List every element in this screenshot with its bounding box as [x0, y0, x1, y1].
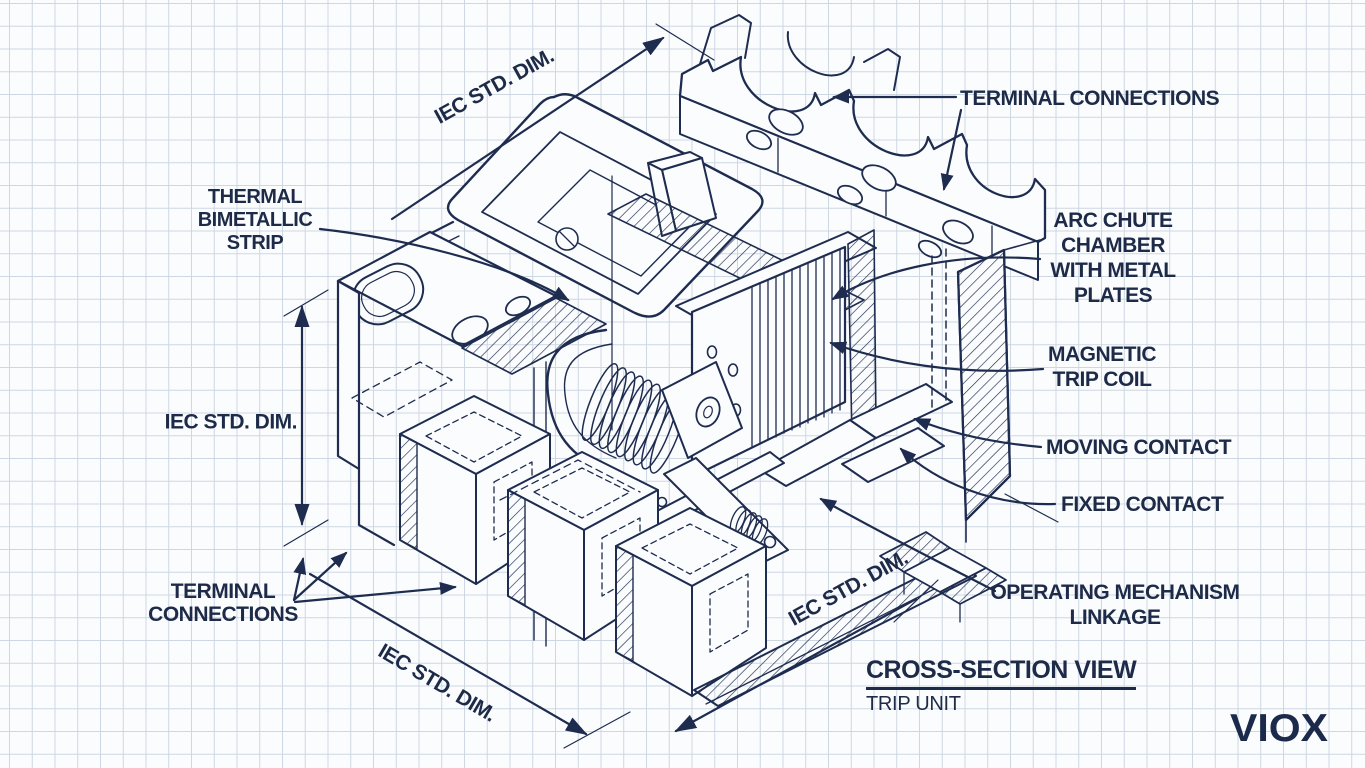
label-terminal-connections-top: TERMINAL CONNECTIONS	[960, 87, 1219, 110]
label-operating-mechanism-linkage: OPERATING MECHANISM LINKAGE	[985, 580, 1245, 630]
label-thermal-bimetallic-strip: THERMAL BIMETALLIC STRIP	[175, 186, 335, 255]
brand-logo: VIOX	[1230, 706, 1328, 751]
label-terminal-connections-bottom: TERMINAL CONNECTIONS	[133, 580, 313, 626]
label-moving-contact: MOVING CONTACT	[1046, 436, 1231, 459]
label-fixed-contact: FIXED CONTACT	[1061, 493, 1223, 516]
label-arc-chute-chamber: ARC CHUTE CHAMBER WITH METAL PLATES	[1033, 208, 1193, 308]
label-iec-dim-left: IEC STD. DIM.	[165, 411, 297, 434]
page-title: CROSS-SECTION VIEW	[866, 656, 1136, 690]
leader-terminal-bottom-3	[295, 587, 455, 602]
drawing-title-block: CROSS-SECTION VIEW TRIP UNIT	[866, 656, 1136, 716]
label-magnetic-trip-coil: MAGNETIC TRIP COIL	[1022, 342, 1182, 392]
page-subtitle: TRIP UNIT	[866, 693, 1136, 716]
blueprint-page: THERMAL BIMETALLIC STRIP TERMINAL CONNEC…	[0, 0, 1365, 768]
